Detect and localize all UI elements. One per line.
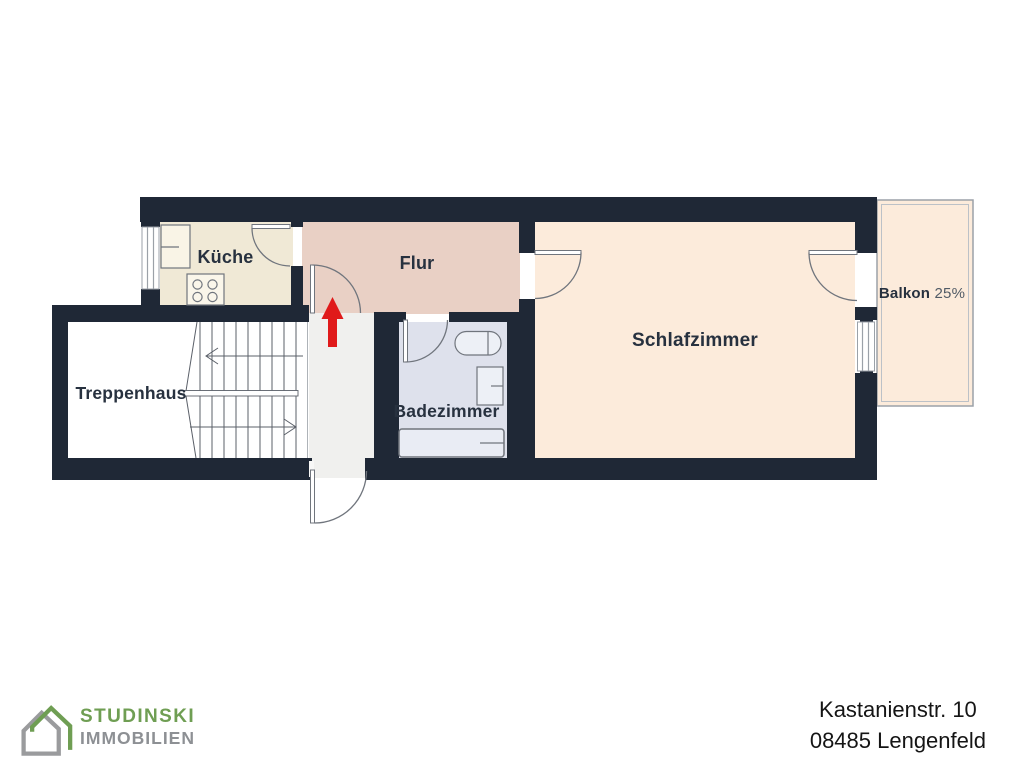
landing-floor (309, 313, 374, 458)
landing-door-gap (312, 458, 365, 478)
company-logo: STUDINSKI IMMOBILIEN (16, 699, 195, 757)
logo-company-type: IMMOBILIEN (80, 728, 195, 748)
logo-house-icon (16, 699, 73, 757)
address-city: 08485 Lengenfeld (810, 725, 986, 756)
property-address: Kastanienstr. 10 08485 Lengenfeld (810, 694, 986, 756)
logo-text: STUDINSKI IMMOBILIEN (80, 707, 195, 748)
bathtub-icon (399, 429, 504, 457)
bedroom-window (858, 322, 875, 371)
address-street: Kastanienstr. 10 (810, 694, 986, 725)
kitchen-window (142, 227, 159, 289)
room-label-balkon: Balkon 25% (871, 285, 973, 302)
room-label-kueche: Küche (158, 247, 293, 268)
room-label-schlafzimmer: Schlafzimmer (585, 330, 805, 352)
room-label-badezimmer: Badezimmer (369, 401, 524, 421)
room-label-flur: Flur (342, 253, 492, 274)
balkon-share-percent: 25% (934, 285, 965, 302)
logo-company-name: STUDINSKI (80, 707, 195, 728)
floor-plan-page: Küche Flur Schlafzimmer Badezimmer Trepp… (0, 0, 1024, 768)
toilet-icon (455, 332, 501, 356)
balcony-outline (877, 200, 973, 406)
sink-icon (477, 367, 503, 405)
balkon-name: Balkon (879, 285, 930, 302)
room-label-treppenhaus: Treppenhaus (55, 383, 207, 403)
stove-icon (187, 274, 224, 305)
